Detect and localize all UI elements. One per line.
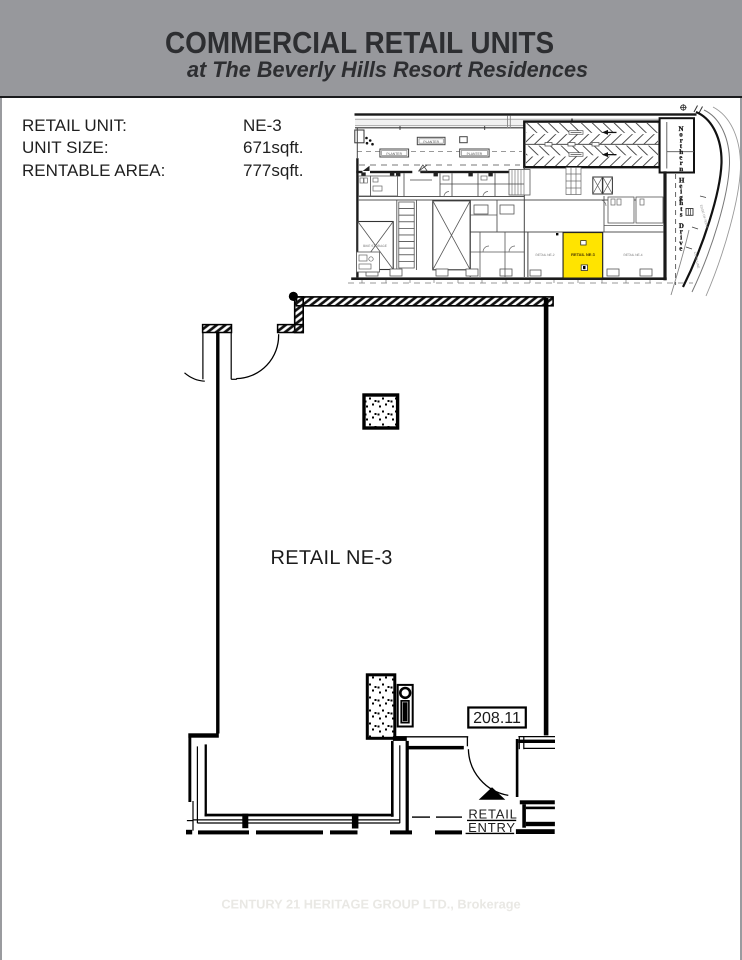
svg-text:PLANTER: PLANTER: [423, 140, 439, 144]
svg-text:CENTURY 21 HERITAGE GROUP LTD.: CENTURY 21 HERITAGE GROUP LTD., Brokerag…: [221, 897, 520, 912]
svg-text:208.11: 208.11: [473, 710, 521, 727]
svg-text:RETAIL NE-4: RETAIL NE-4: [624, 253, 643, 257]
svg-text:EDGE OF ROAD: EDGE OF ROAD: [699, 204, 709, 229]
svg-text:PLANTER: PLANTER: [467, 152, 483, 156]
svg-text:ENTRY: ENTRY: [468, 820, 516, 835]
svg-text:RETAIL NE-3: RETAIL NE-3: [571, 252, 595, 257]
svg-text:BIKE STORAGE: BIKE STORAGE: [363, 244, 387, 248]
svg-text:PLANTER: PLANTER: [386, 152, 402, 156]
svg-text:RETAIL NE-2: RETAIL NE-2: [536, 253, 555, 257]
svg-text:RETAIL NE-3: RETAIL NE-3: [271, 547, 393, 569]
